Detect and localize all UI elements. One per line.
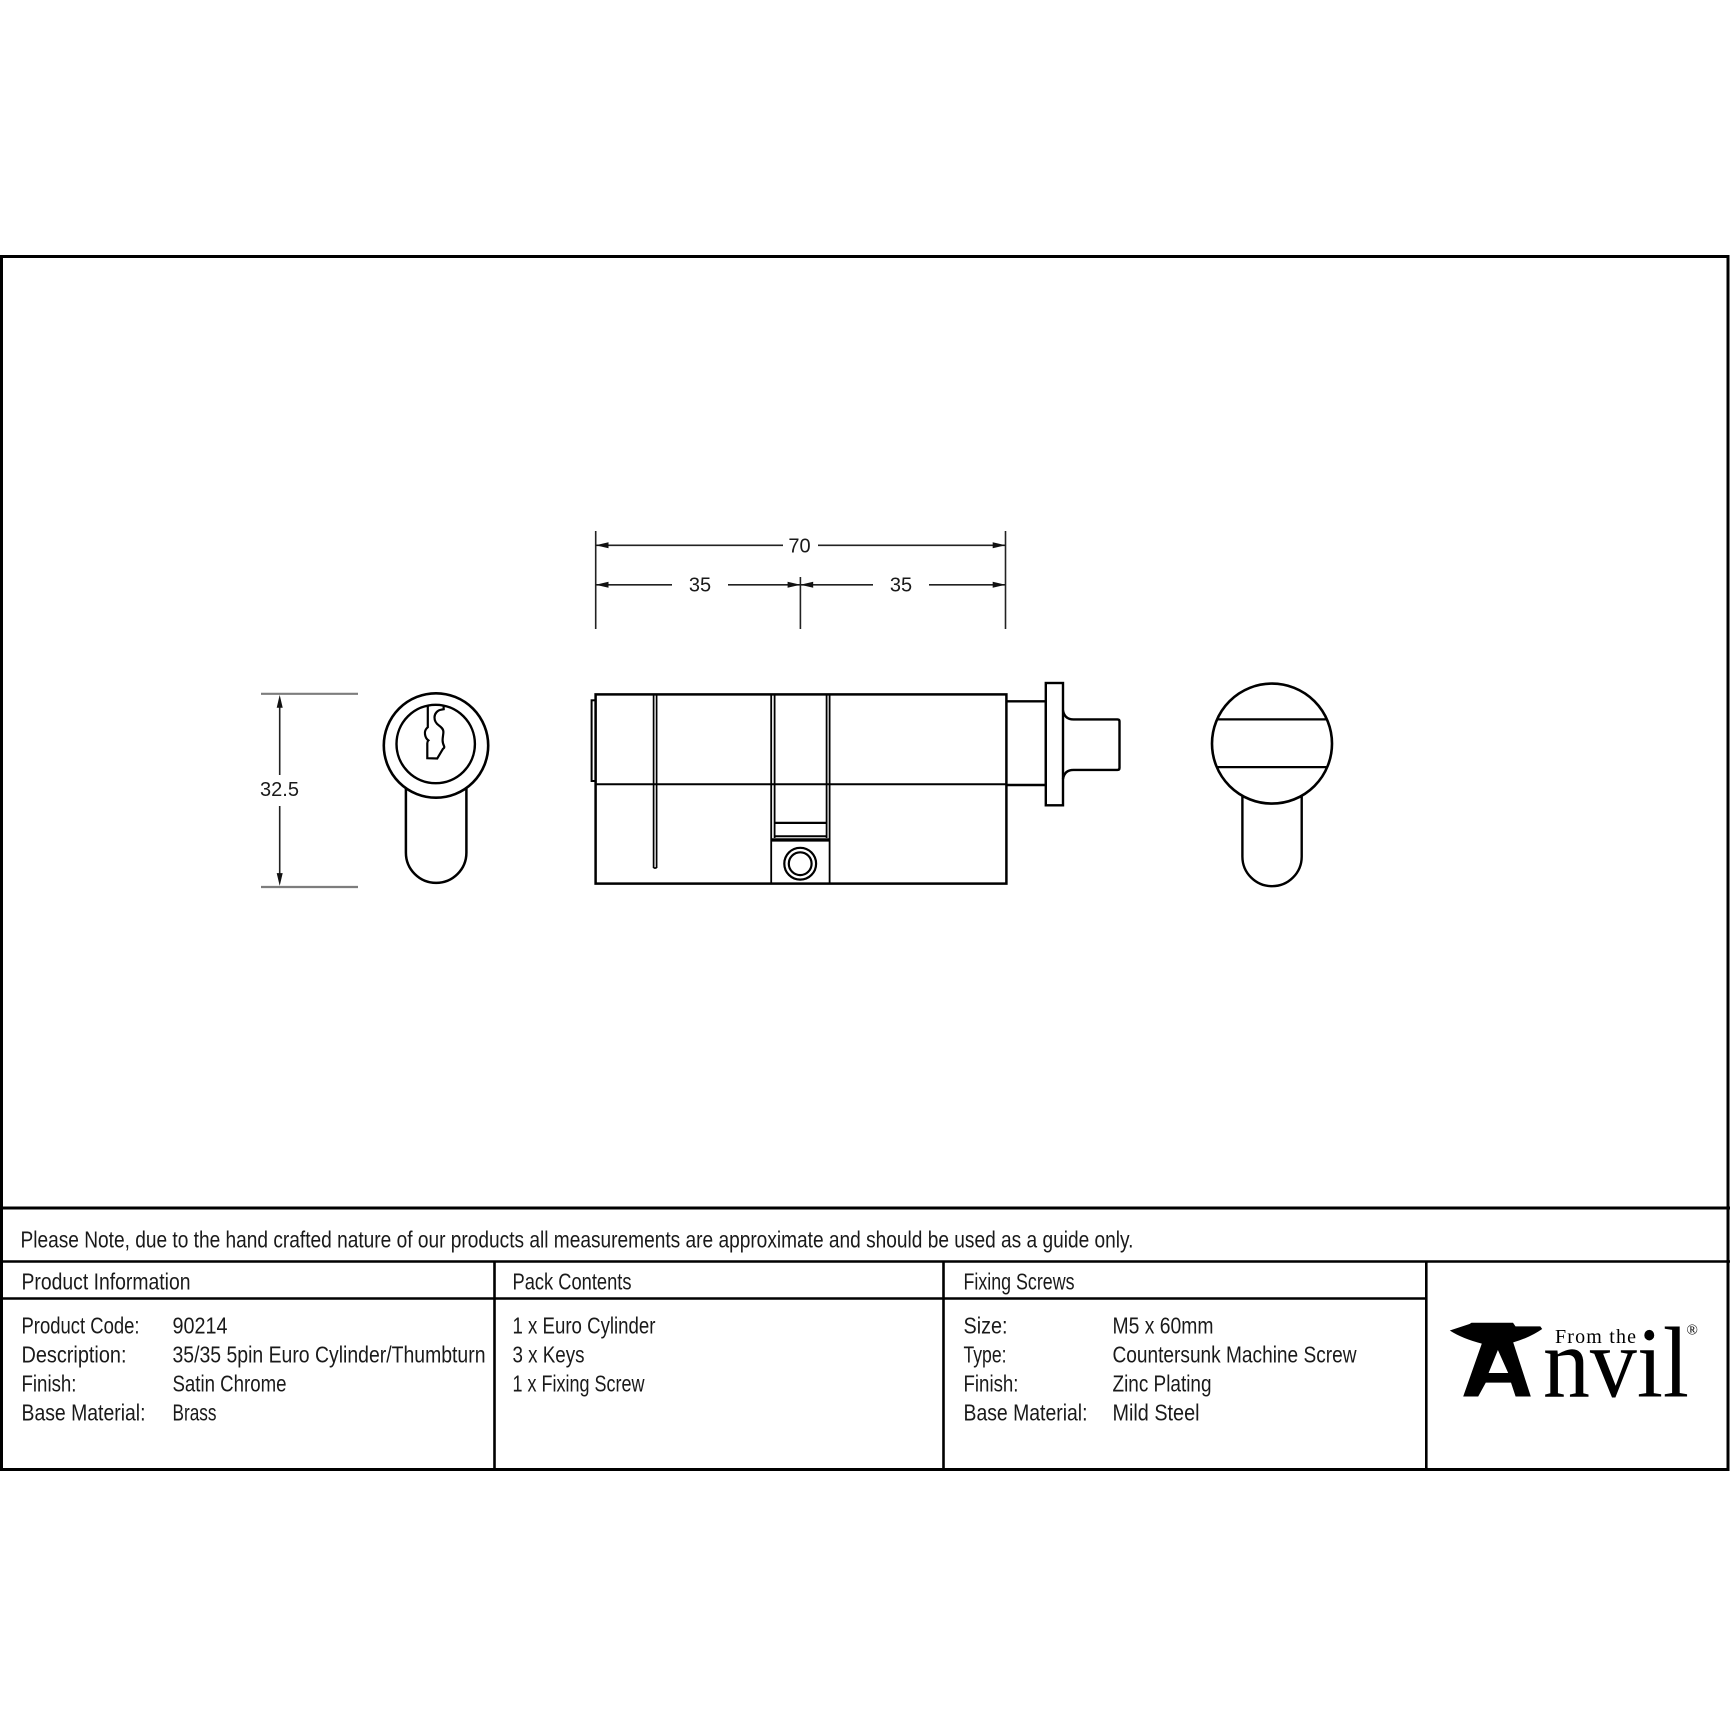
svg-text:Finish:: Finish: <box>964 1371 1019 1397</box>
svg-text:1 x Fixing Screw: 1 x Fixing Screw <box>513 1371 646 1397</box>
svg-text:Countersunk Machine Screw: Countersunk Machine Screw <box>1113 1341 1358 1367</box>
svg-text:Product Code:: Product Code: <box>22 1312 140 1338</box>
svg-text:Please Note, due to the hand c: Please Note, due to the hand crafted nat… <box>21 1227 1134 1253</box>
svg-text:32.5: 32.5 <box>260 779 299 801</box>
svg-text:Size:: Size: <box>964 1312 1008 1338</box>
svg-text:3 x Keys: 3 x Keys <box>513 1341 585 1367</box>
svg-text:Finish:: Finish: <box>22 1371 77 1397</box>
svg-text:35: 35 <box>689 575 711 597</box>
svg-text:Description:: Description: <box>22 1341 127 1367</box>
svg-text:Brass: Brass <box>173 1400 217 1426</box>
svg-text:nvil: nvil <box>1543 1306 1689 1418</box>
svg-text:Fixing Screws: Fixing Screws <box>964 1269 1075 1295</box>
svg-text:®: ® <box>1687 1323 1698 1339</box>
svg-text:Type:: Type: <box>964 1341 1007 1367</box>
svg-text:Satin Chrome: Satin Chrome <box>173 1371 287 1397</box>
svg-text:Pack Contents: Pack Contents <box>513 1269 632 1295</box>
svg-text:35/35 5pin Euro Cylinder/Thumb: 35/35 5pin Euro Cylinder/Thumbturn <box>173 1341 486 1367</box>
svg-text:M5 x 60mm: M5 x 60mm <box>1113 1312 1214 1338</box>
svg-text:Product Information: Product Information <box>22 1269 191 1295</box>
svg-text:35: 35 <box>890 575 912 597</box>
svg-text:Base Material:: Base Material: <box>22 1400 146 1426</box>
svg-text:1 x Euro Cylinder: 1 x Euro Cylinder <box>513 1312 656 1338</box>
svg-text:90214: 90214 <box>173 1312 228 1338</box>
svg-text:Zinc Plating: Zinc Plating <box>1113 1371 1212 1397</box>
svg-text:Mild Steel: Mild Steel <box>1113 1400 1200 1426</box>
svg-text:70: 70 <box>788 536 810 558</box>
svg-text:Base Material:: Base Material: <box>964 1400 1088 1426</box>
